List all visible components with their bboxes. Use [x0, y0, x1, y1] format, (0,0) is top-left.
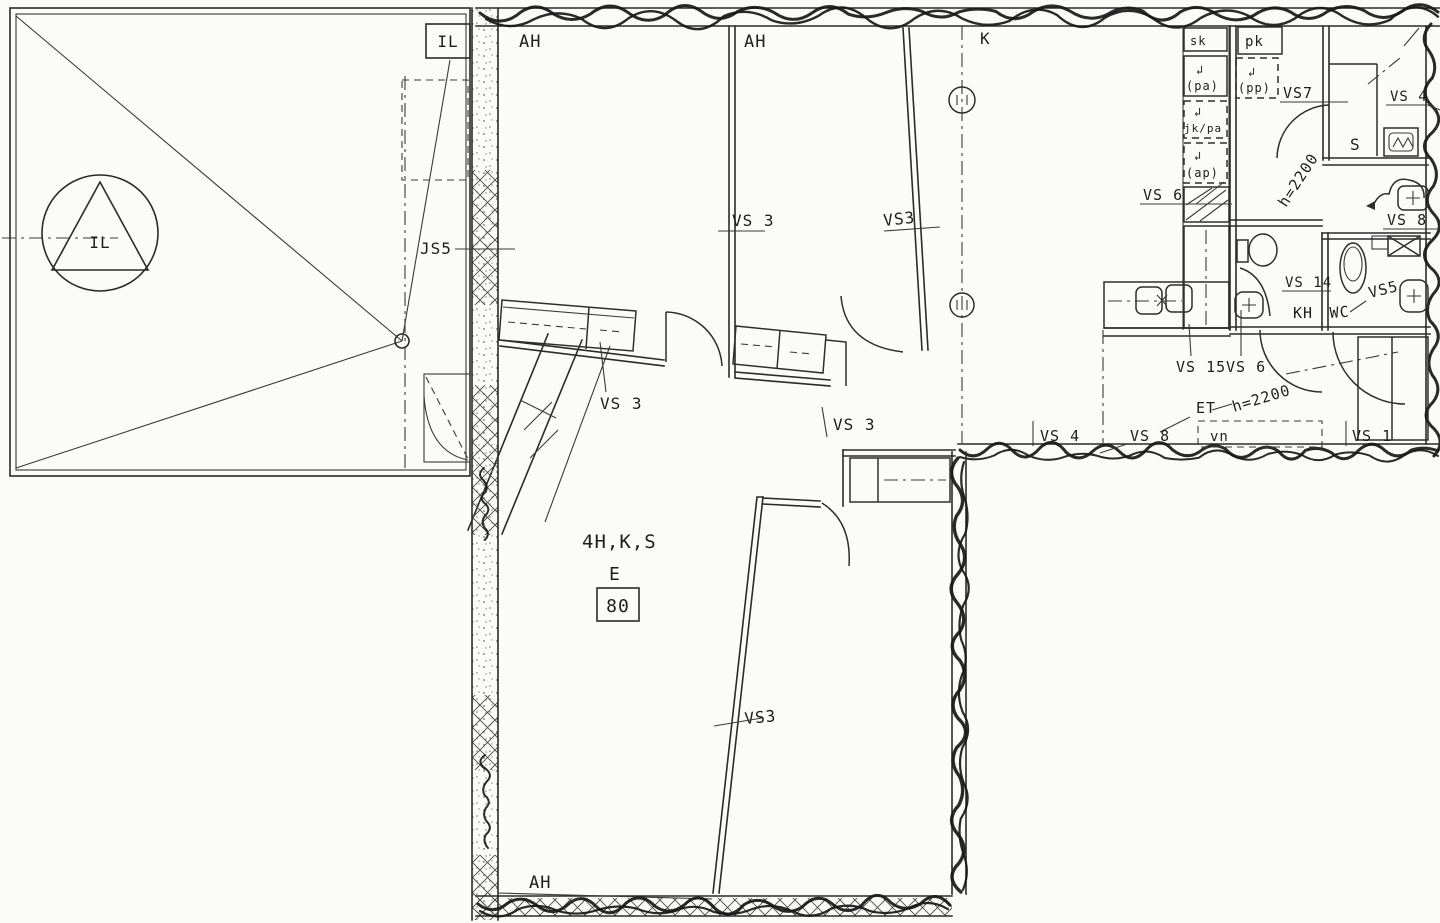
label-wall-vs3-1: VS 3: [732, 211, 775, 230]
washbasin-icon: [1400, 280, 1428, 312]
label-wall-js5: JS5: [420, 239, 452, 258]
label-height-note-2: h=2200: [1230, 381, 1293, 416]
label-room-kh: KH: [1293, 304, 1313, 322]
label-fixture-pp: (pp): [1238, 81, 1271, 95]
washbasin-icon: [1235, 292, 1263, 318]
label-unit-number: 80: [606, 596, 630, 617]
label-fixture-jkpa: jk/pa: [1184, 122, 1222, 135]
label-fixture-ap: (ap): [1186, 166, 1219, 180]
label-room-ah-2: AH: [744, 32, 766, 52]
sauna-stove-icon: [1384, 128, 1418, 156]
label-room-et: ET: [1196, 399, 1216, 417]
label-wall-vs8-2: VS 8: [1130, 427, 1170, 445]
label-apartment-type: 4H,K,S: [582, 531, 657, 553]
labels: IL IL AH AH AH K JS5 VS 3 VS3 VS 3 VS 3 …: [89, 29, 1440, 893]
label-staircase: E: [609, 564, 621, 585]
label-fixture-pk: pk: [1245, 34, 1264, 50]
toilet-icon: [1237, 234, 1277, 266]
label-wall-vs4-2: VS 4: [1040, 427, 1080, 445]
label-wall-vs3-2: VS3: [882, 208, 916, 230]
label-il-box: IL: [437, 32, 458, 51]
hook-arrow-icon: ↲: [1194, 149, 1202, 163]
label-fixture-pa: (pa): [1186, 79, 1219, 93]
label-il-symbol: IL: [89, 233, 110, 252]
label-wall-vs6-1: VS 6: [1143, 186, 1183, 204]
kitchen-sink-icon: [1104, 282, 1229, 328]
apartment-id: 4H,K,S E 80: [582, 531, 657, 621]
label-room-wc: WC: [1329, 303, 1350, 322]
label-wall-vs15: VS 15: [1176, 358, 1226, 376]
terrace-door: [424, 374, 470, 462]
toilet-icon: [1340, 243, 1366, 293]
closet-middle-room: [733, 326, 846, 386]
label-room-ah-1: AH: [519, 32, 541, 52]
middle-rooms: [499, 26, 975, 893]
label-wall-vs6-2: VS 6: [1226, 358, 1266, 376]
label-reservation-vn: vn: [1210, 429, 1229, 445]
label-wall-vs7: VS7: [1283, 84, 1313, 102]
terrace-area: [2, 8, 610, 534]
exterior-walls: [472, 5, 1440, 920]
floor-plan-canvas: IL IL AH AH AH K JS5 VS 3 VS3 VS 3 VS 3 …: [0, 0, 1440, 923]
label-room-ah-3: AH: [529, 873, 551, 893]
label-wall-vs8-1: VS 8: [1387, 211, 1427, 229]
label-height-note-1: h=2200: [1274, 150, 1322, 210]
hall-closet: [763, 450, 955, 566]
label-wall-vs5: VS5: [1367, 277, 1401, 302]
label-fixture-sk: sk: [1190, 34, 1206, 48]
label-wall-vs1: VS 1: [1352, 427, 1392, 445]
label-wall-vs3-4: VS 3: [833, 415, 876, 434]
label-wall-vs4-1: VS 4: [1390, 89, 1428, 105]
label-wall-vs3-3: VS 3: [600, 394, 643, 413]
hook-arrow-icon: ↲: [1194, 105, 1202, 119]
washbasin-icon: [1366, 179, 1428, 210]
hook-arrow-icon: ↲: [1196, 63, 1204, 77]
closet-left-room: [499, 300, 636, 351]
label-room-kitchen: K: [980, 29, 991, 48]
label-room-sauna: S: [1350, 135, 1361, 154]
label-wall-vs3-5: VS3: [744, 706, 777, 728]
hook-arrow-icon: ↲: [1248, 65, 1256, 79]
label-wall-vs14: VS 14: [1285, 275, 1332, 291]
